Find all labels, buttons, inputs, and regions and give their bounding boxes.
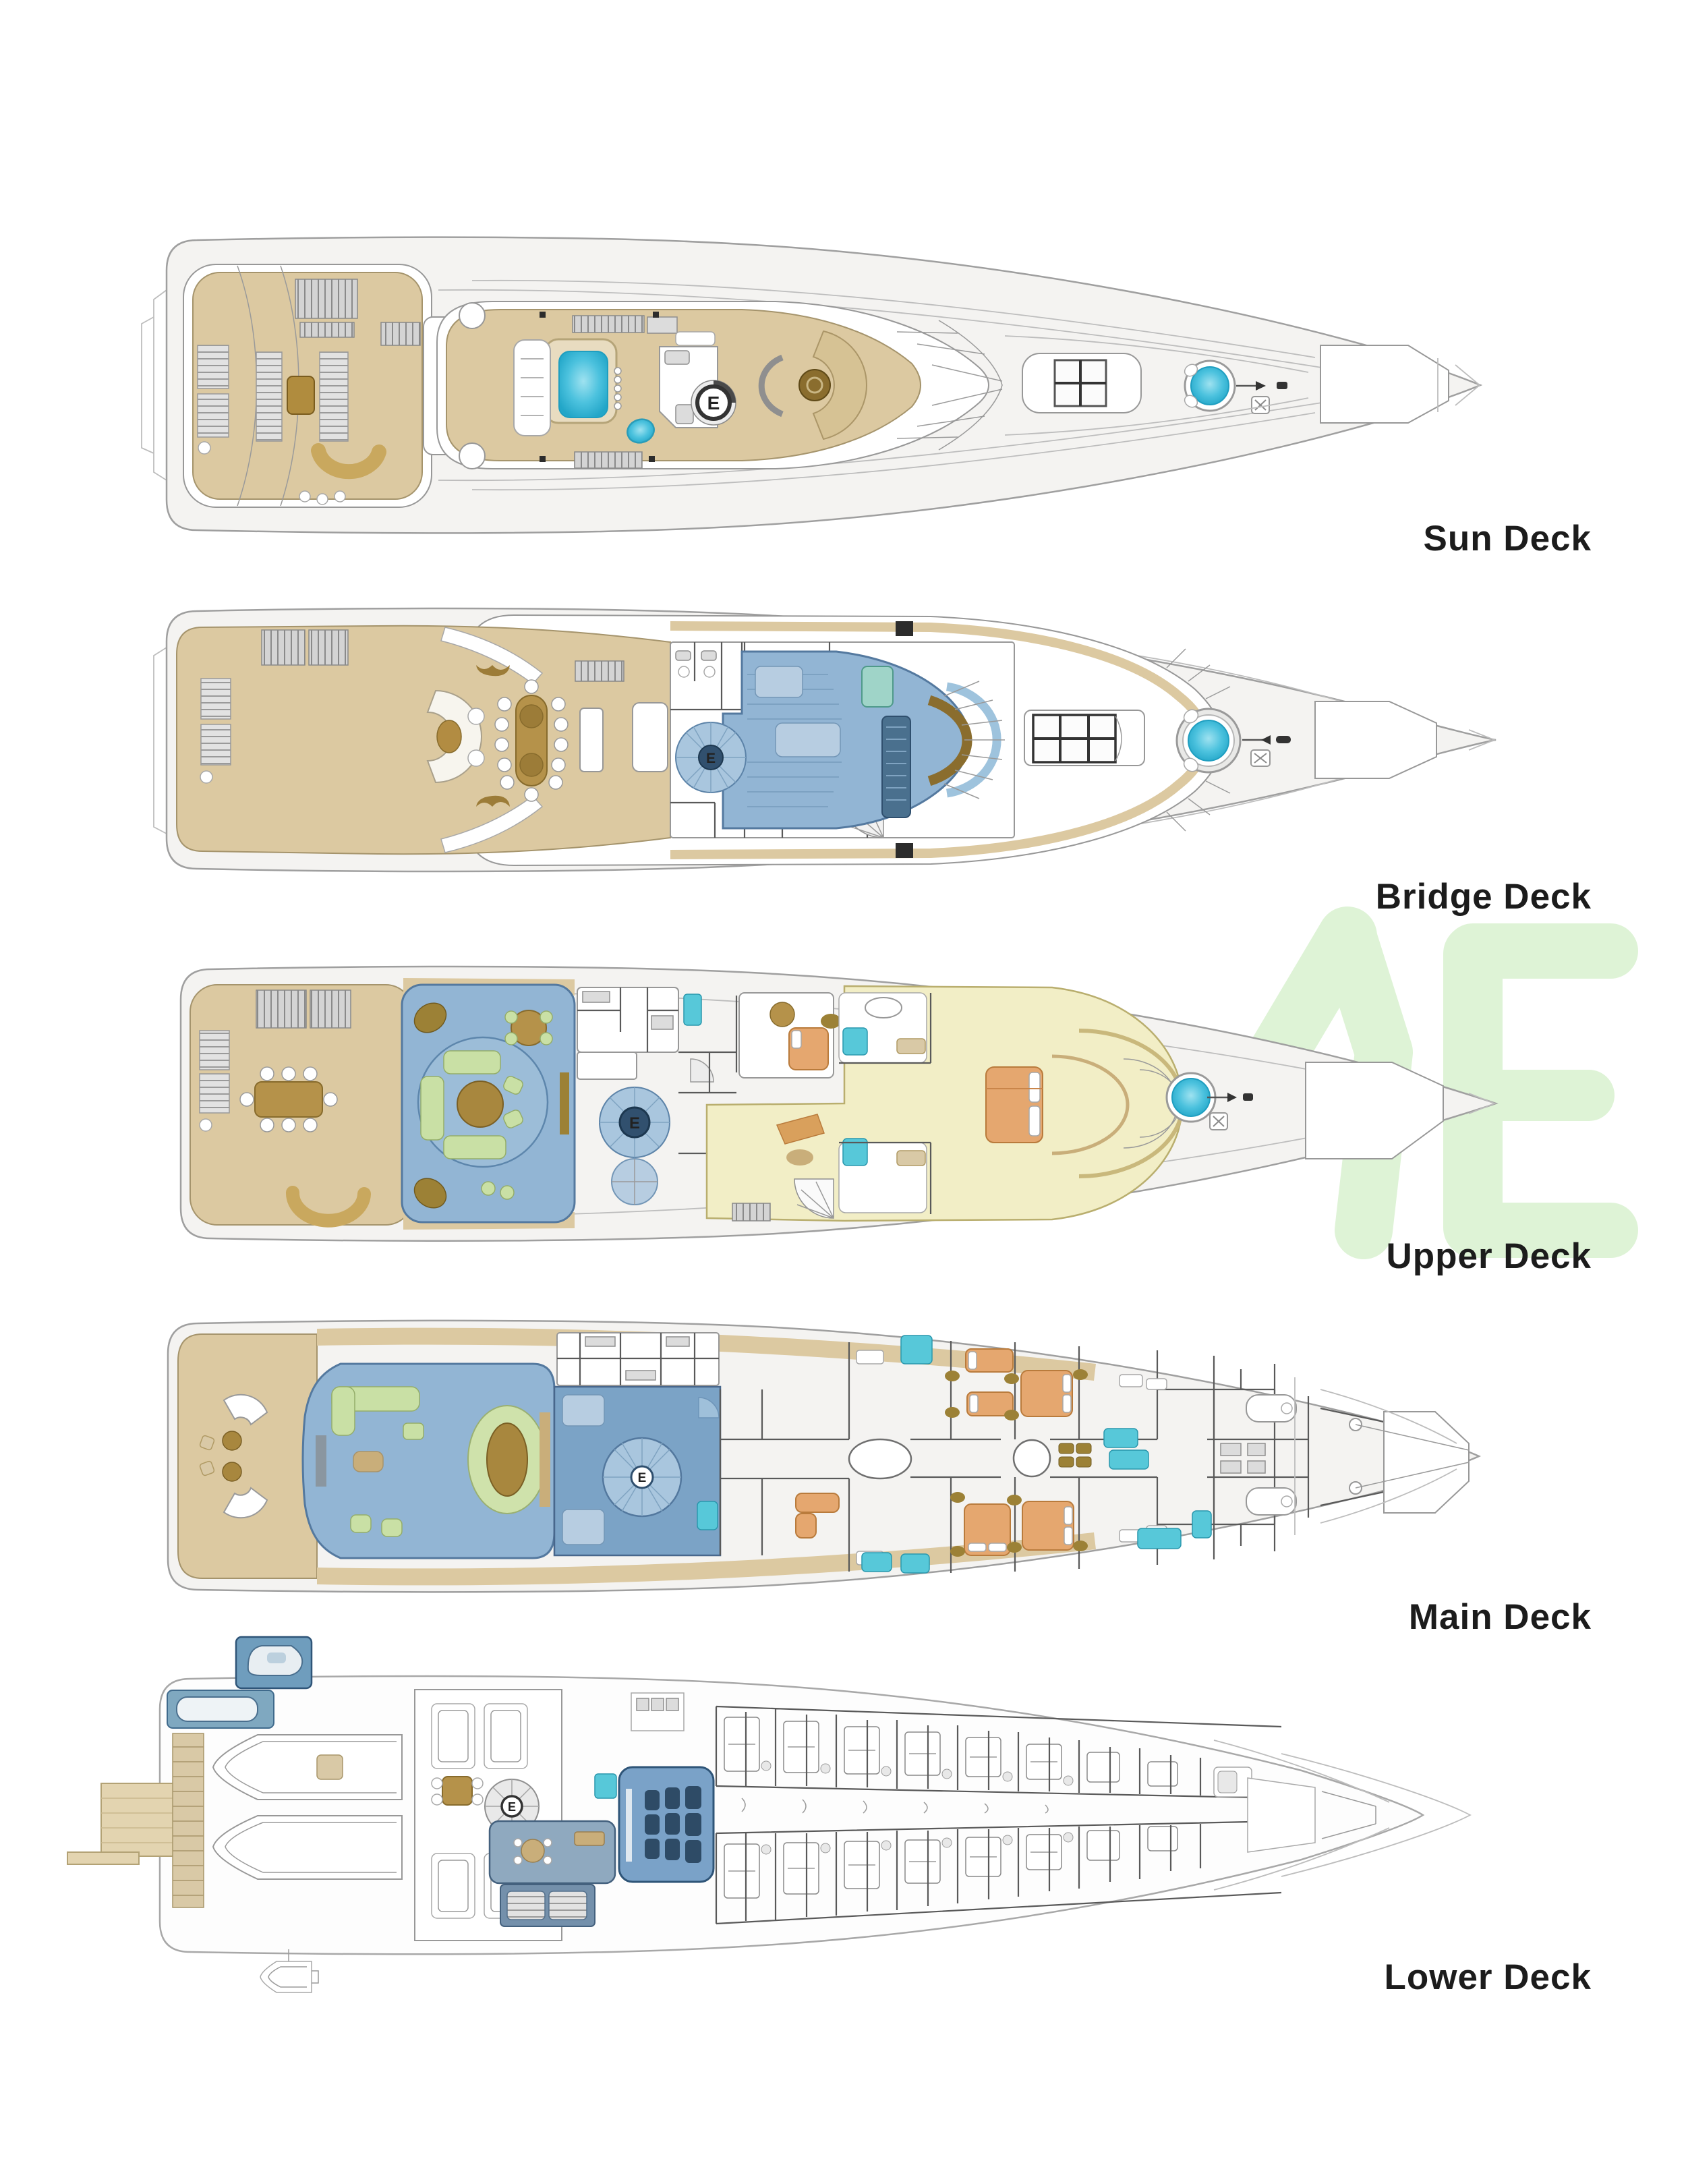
svg-text:E: E (706, 751, 716, 766)
svg-text:Upper Deck: Upper Deck (1386, 1236, 1592, 1276)
svg-text:Sun Deck: Sun Deck (1423, 519, 1592, 558)
svg-text:E: E (707, 393, 720, 413)
svg-text:E: E (629, 1114, 640, 1132)
svg-text:E: E (638, 1471, 647, 1485)
svg-text:Bridge Deck: Bridge Deck (1376, 877, 1592, 917)
svg-text:E: E (508, 1800, 516, 1814)
svg-text:Main Deck: Main Deck (1409, 1597, 1592, 1637)
svg-text:Lower Deck: Lower Deck (1384, 1957, 1592, 1997)
